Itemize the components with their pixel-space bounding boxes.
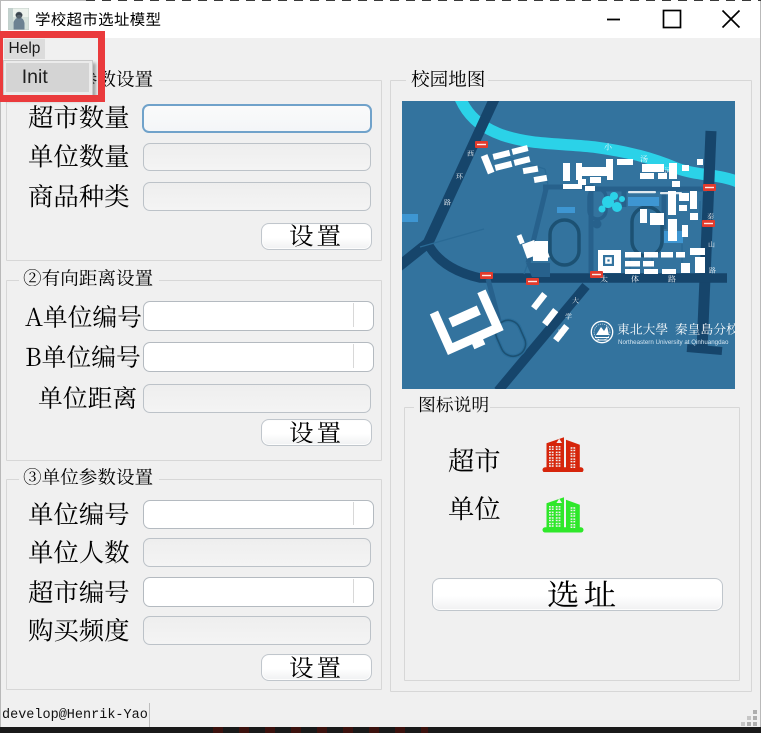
svg-text:Northeastern University at Qin: Northeastern University at Qinhuangdao: [618, 339, 729, 346]
